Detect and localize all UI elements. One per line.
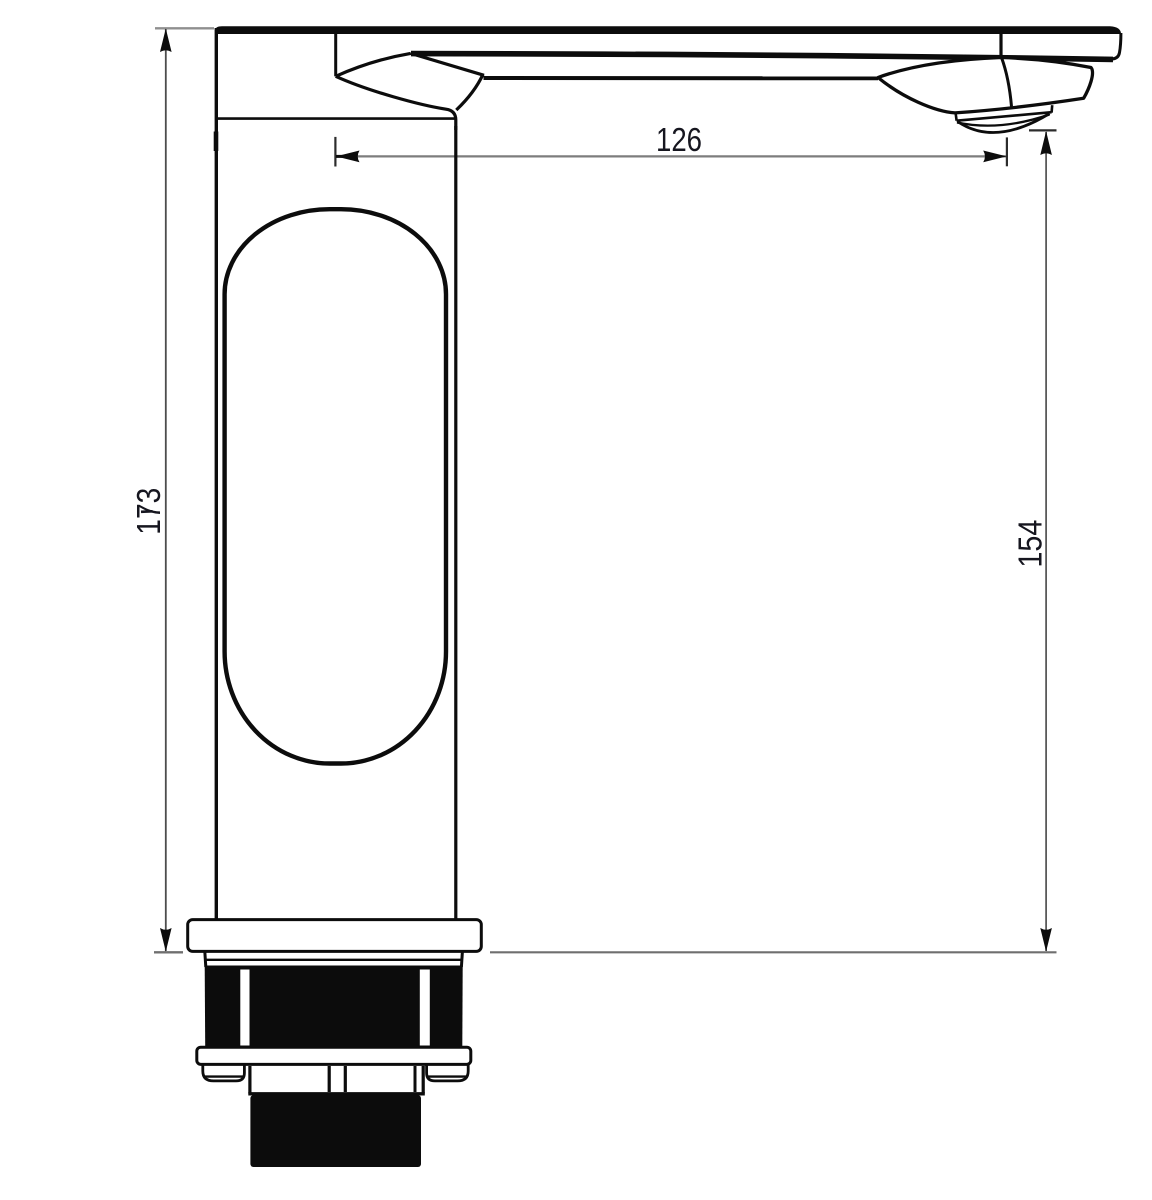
svg-text:154: 154	[1013, 520, 1050, 568]
svg-text:126: 126	[656, 122, 702, 159]
